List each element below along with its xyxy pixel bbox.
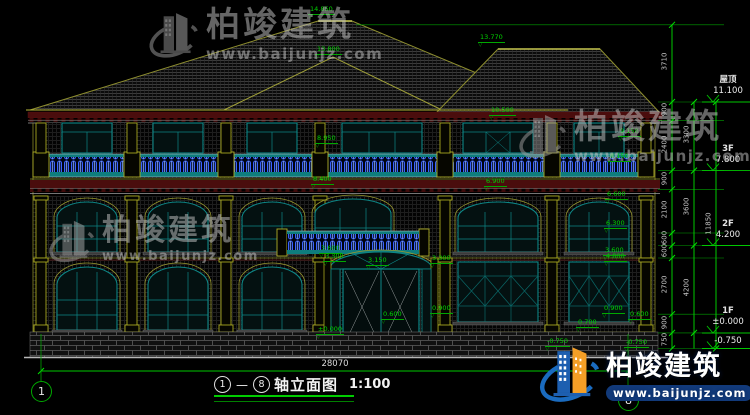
spot-elevation: 14.850 (308, 6, 335, 20)
spot-elevation: 3.150 (366, 257, 389, 271)
drawing-title: 1 — 8 轴立面图 1:100 (214, 374, 390, 395)
spot-elevation: 0.600 (381, 311, 404, 325)
spot-elevation: 0.600 (628, 311, 651, 325)
spot-elevation: 13.770 (478, 34, 505, 48)
level-marker-2f: 2F4.200 (704, 219, 750, 240)
dim-label: 600 (662, 234, 669, 268)
spot-elevation: 0.900 (430, 305, 453, 319)
dim-label: 4200 (684, 271, 691, 305)
title-scale: 1:100 (349, 377, 390, 392)
spot-elevation: 8.150 (608, 153, 631, 167)
level-marker-roof: 屋顶11.100 (704, 75, 750, 96)
brand-logo: 柏竣建筑 www.baijunjz.com (538, 341, 750, 412)
spot-elevation: 6.900 (484, 178, 507, 192)
brand-logo-icon (538, 341, 602, 412)
dim-label: 2700 (662, 268, 669, 302)
level-marker-1f: 1F±0.000 (704, 306, 750, 327)
cad-elevation-screenshot: 14.850 13.800 13.770 10.500 8.950 9.150 … (0, 0, 750, 415)
brand-url: www.baijunjz.com (606, 385, 750, 401)
title-axis-from: 1 (214, 376, 231, 393)
level-marker-3f: 3F7.800 (704, 144, 750, 165)
second-cornice (30, 179, 660, 194)
main-cornice (28, 112, 662, 123)
spot-elevation: 10.500 (489, 107, 516, 121)
spot-elevation: 6.300 (604, 220, 627, 234)
spot-elevation: 13.800 (315, 46, 342, 60)
spot-elevation: 8.950 (315, 135, 338, 149)
roof-group (26, 21, 662, 113)
dim-label: 900 (662, 93, 669, 127)
spot-elevation: 3.300 (430, 255, 453, 269)
spot-elevation: 9.150 (618, 128, 641, 142)
dim-label: 3300 (684, 118, 691, 152)
spot-elevation: 6.600 (605, 191, 628, 205)
spot-elevation: 3.300 (323, 253, 346, 267)
spot-elevation: ±0.000 (316, 326, 344, 340)
dim-label: 3600 (684, 190, 691, 224)
title-axis-to: 8 (253, 376, 270, 393)
title-text: 轴立面图 (274, 374, 338, 395)
brand-name: 柏竣建筑 (606, 352, 750, 382)
spot-elevation: 8.400 (311, 176, 334, 190)
balustrade-3f (33, 152, 654, 177)
title-underline (214, 395, 354, 402)
spot-elevation: 0.700 (576, 319, 599, 333)
dim-label: 2400 (662, 128, 669, 162)
dim-label: 900 (662, 162, 669, 196)
spot-elevation: 0.900 (602, 305, 625, 319)
title-dash: — (236, 378, 248, 392)
axis-bubble-1: 1 (31, 381, 52, 402)
spot-elevation: 3.600 (603, 247, 626, 261)
dim-label: 3710 (662, 45, 669, 79)
dim-total-width: 28070 (305, 359, 365, 369)
